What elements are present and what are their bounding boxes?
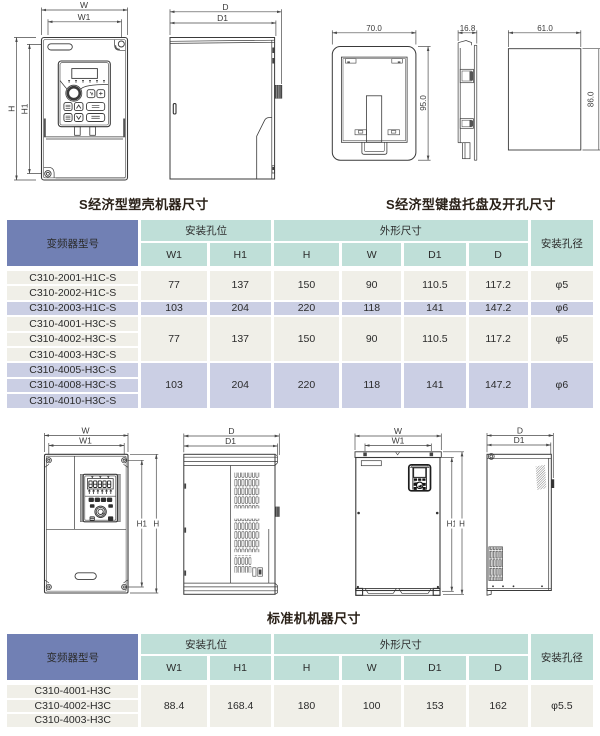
svg-text:86.0: 86.0	[587, 91, 596, 107]
svg-text:H: H	[153, 520, 159, 529]
svg-text:D1: D1	[514, 435, 525, 445]
svg-text:H1: H1	[20, 103, 30, 114]
svg-text:H: H	[459, 520, 465, 529]
svg-text:D1: D1	[217, 13, 228, 23]
svg-text:D: D	[222, 2, 228, 12]
svg-text:H1: H1	[137, 520, 148, 529]
svg-text:95.0: 95.0	[419, 95, 428, 111]
svg-text:W1: W1	[78, 12, 91, 22]
svg-text:70.0: 70.0	[366, 24, 382, 33]
svg-text:W: W	[80, 0, 88, 10]
svg-text:16.8: 16.8	[460, 24, 476, 33]
svg-text:D1: D1	[225, 436, 236, 446]
svg-text:W: W	[394, 426, 402, 436]
svg-text:H: H	[7, 106, 17, 112]
svg-text:D: D	[228, 426, 234, 436]
svg-text:W1: W1	[392, 436, 405, 446]
svg-text:W1: W1	[79, 436, 92, 446]
svg-text:D: D	[517, 426, 523, 436]
svg-text:W: W	[81, 426, 89, 436]
svg-text:61.0: 61.0	[537, 24, 553, 33]
